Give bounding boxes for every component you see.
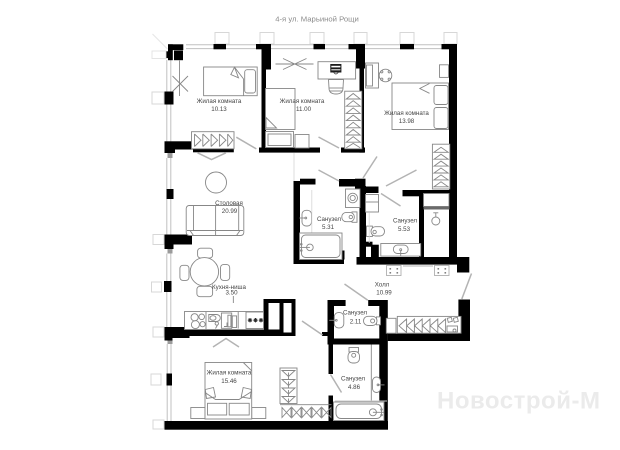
svg-text:Жилая комната: Жилая комната [384, 110, 429, 117]
svg-text:4-я ул. Марьиной Рощи: 4-я ул. Марьиной Рощи [275, 15, 359, 24]
svg-text:Санузел: Санузел [393, 218, 417, 225]
svg-text:11.00: 11.00 [296, 106, 312, 113]
svg-text:4.86: 4.86 [348, 384, 361, 391]
svg-text:Столовая: Столовая [215, 200, 243, 207]
svg-text:Санузел: Санузел [317, 216, 341, 223]
svg-text:3.50: 3.50 [225, 290, 238, 297]
svg-text:10.13: 10.13 [211, 106, 227, 113]
svg-text:Холл: Холл [375, 282, 390, 289]
svg-text:Жилая комната: Жилая комната [197, 98, 242, 105]
svg-text:20.99: 20.99 [222, 208, 238, 215]
svg-text:13.98: 13.98 [399, 118, 415, 125]
svg-text:10.99: 10.99 [376, 290, 392, 297]
svg-text:5.31: 5.31 [322, 224, 335, 231]
svg-text:5.53: 5.53 [398, 226, 411, 233]
svg-text:Санузел: Санузел [341, 376, 365, 383]
svg-text:2.11: 2.11 [350, 319, 362, 326]
svg-text:Жилая комната: Жилая комната [280, 98, 325, 105]
svg-text:Новострой-М: Новострой-М [437, 388, 600, 415]
svg-text:15.46: 15.46 [221, 378, 237, 385]
svg-text:Санузел: Санузел [343, 310, 367, 317]
svg-text:Жилая комната: Жилая комната [207, 370, 252, 377]
